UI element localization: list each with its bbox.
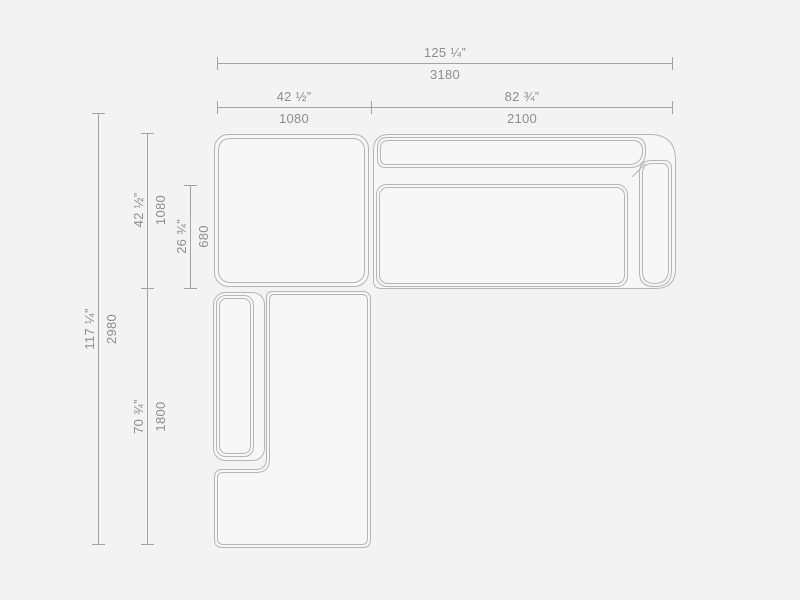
chaise-armrest-outline [214,293,265,461]
dim-ottoman-width: 42 ½” 1080 [217,89,372,126]
dim-overall-depth-mm: 2980 [104,314,119,344]
dim-seat-depth-mm: 680 [196,225,211,248]
dim-overall-width: 125 ¼” 3180 [217,45,673,82]
dim-seat-depth-inches: 26 ¾” [174,219,189,254]
dim-overall-width-inches: 125 ¼” [424,45,466,60]
dimension-annotations: 125 ¼” 3180 42 ½” 1080 82 ¾” 2100 117 ¼”… [82,45,673,545]
dim-overall-width-mm: 3180 [430,67,460,82]
dim-ottoman-width-inches: 42 ½” [277,89,312,104]
sofa-module [374,135,676,289]
dim-chaise-length-mm: 1800 [153,401,168,431]
dim-sofa-width: 82 ¾” 2100 [371,89,673,126]
sofa-dimension-diagram: 125 ¼” 3180 42 ½” 1080 82 ¾” 2100 117 ¼”… [0,0,800,600]
dim-sofa-width-inches: 82 ¾” [505,89,540,104]
dim-ottoman-depth: 42 ½” 1080 [131,133,168,289]
dim-chaise-length: 70 ¾” 1800 [131,288,168,545]
dim-ottoman-width-mm: 1080 [279,111,309,126]
ottoman-module [215,135,369,287]
dim-sofa-width-mm: 2100 [507,111,537,126]
furniture-outlines [214,135,676,548]
sofa-outline [374,135,676,289]
diagram-canvas: 125 ¼” 3180 42 ½” 1080 82 ¾” 2100 117 ¼”… [0,0,800,600]
dim-seat-depth: 26 ¾” 680 [174,185,211,289]
ottoman-outline [215,135,369,287]
dim-chaise-length-inches: 70 ¾” [131,399,146,434]
dim-overall-depth: 117 ¼” 2980 [82,113,119,545]
dim-overall-depth-inches: 117 ¼” [82,308,97,349]
dim-ottoman-depth-mm: 1080 [153,195,168,225]
chaise-module [214,292,371,548]
dim-ottoman-depth-inches: 42 ½” [131,193,146,228]
